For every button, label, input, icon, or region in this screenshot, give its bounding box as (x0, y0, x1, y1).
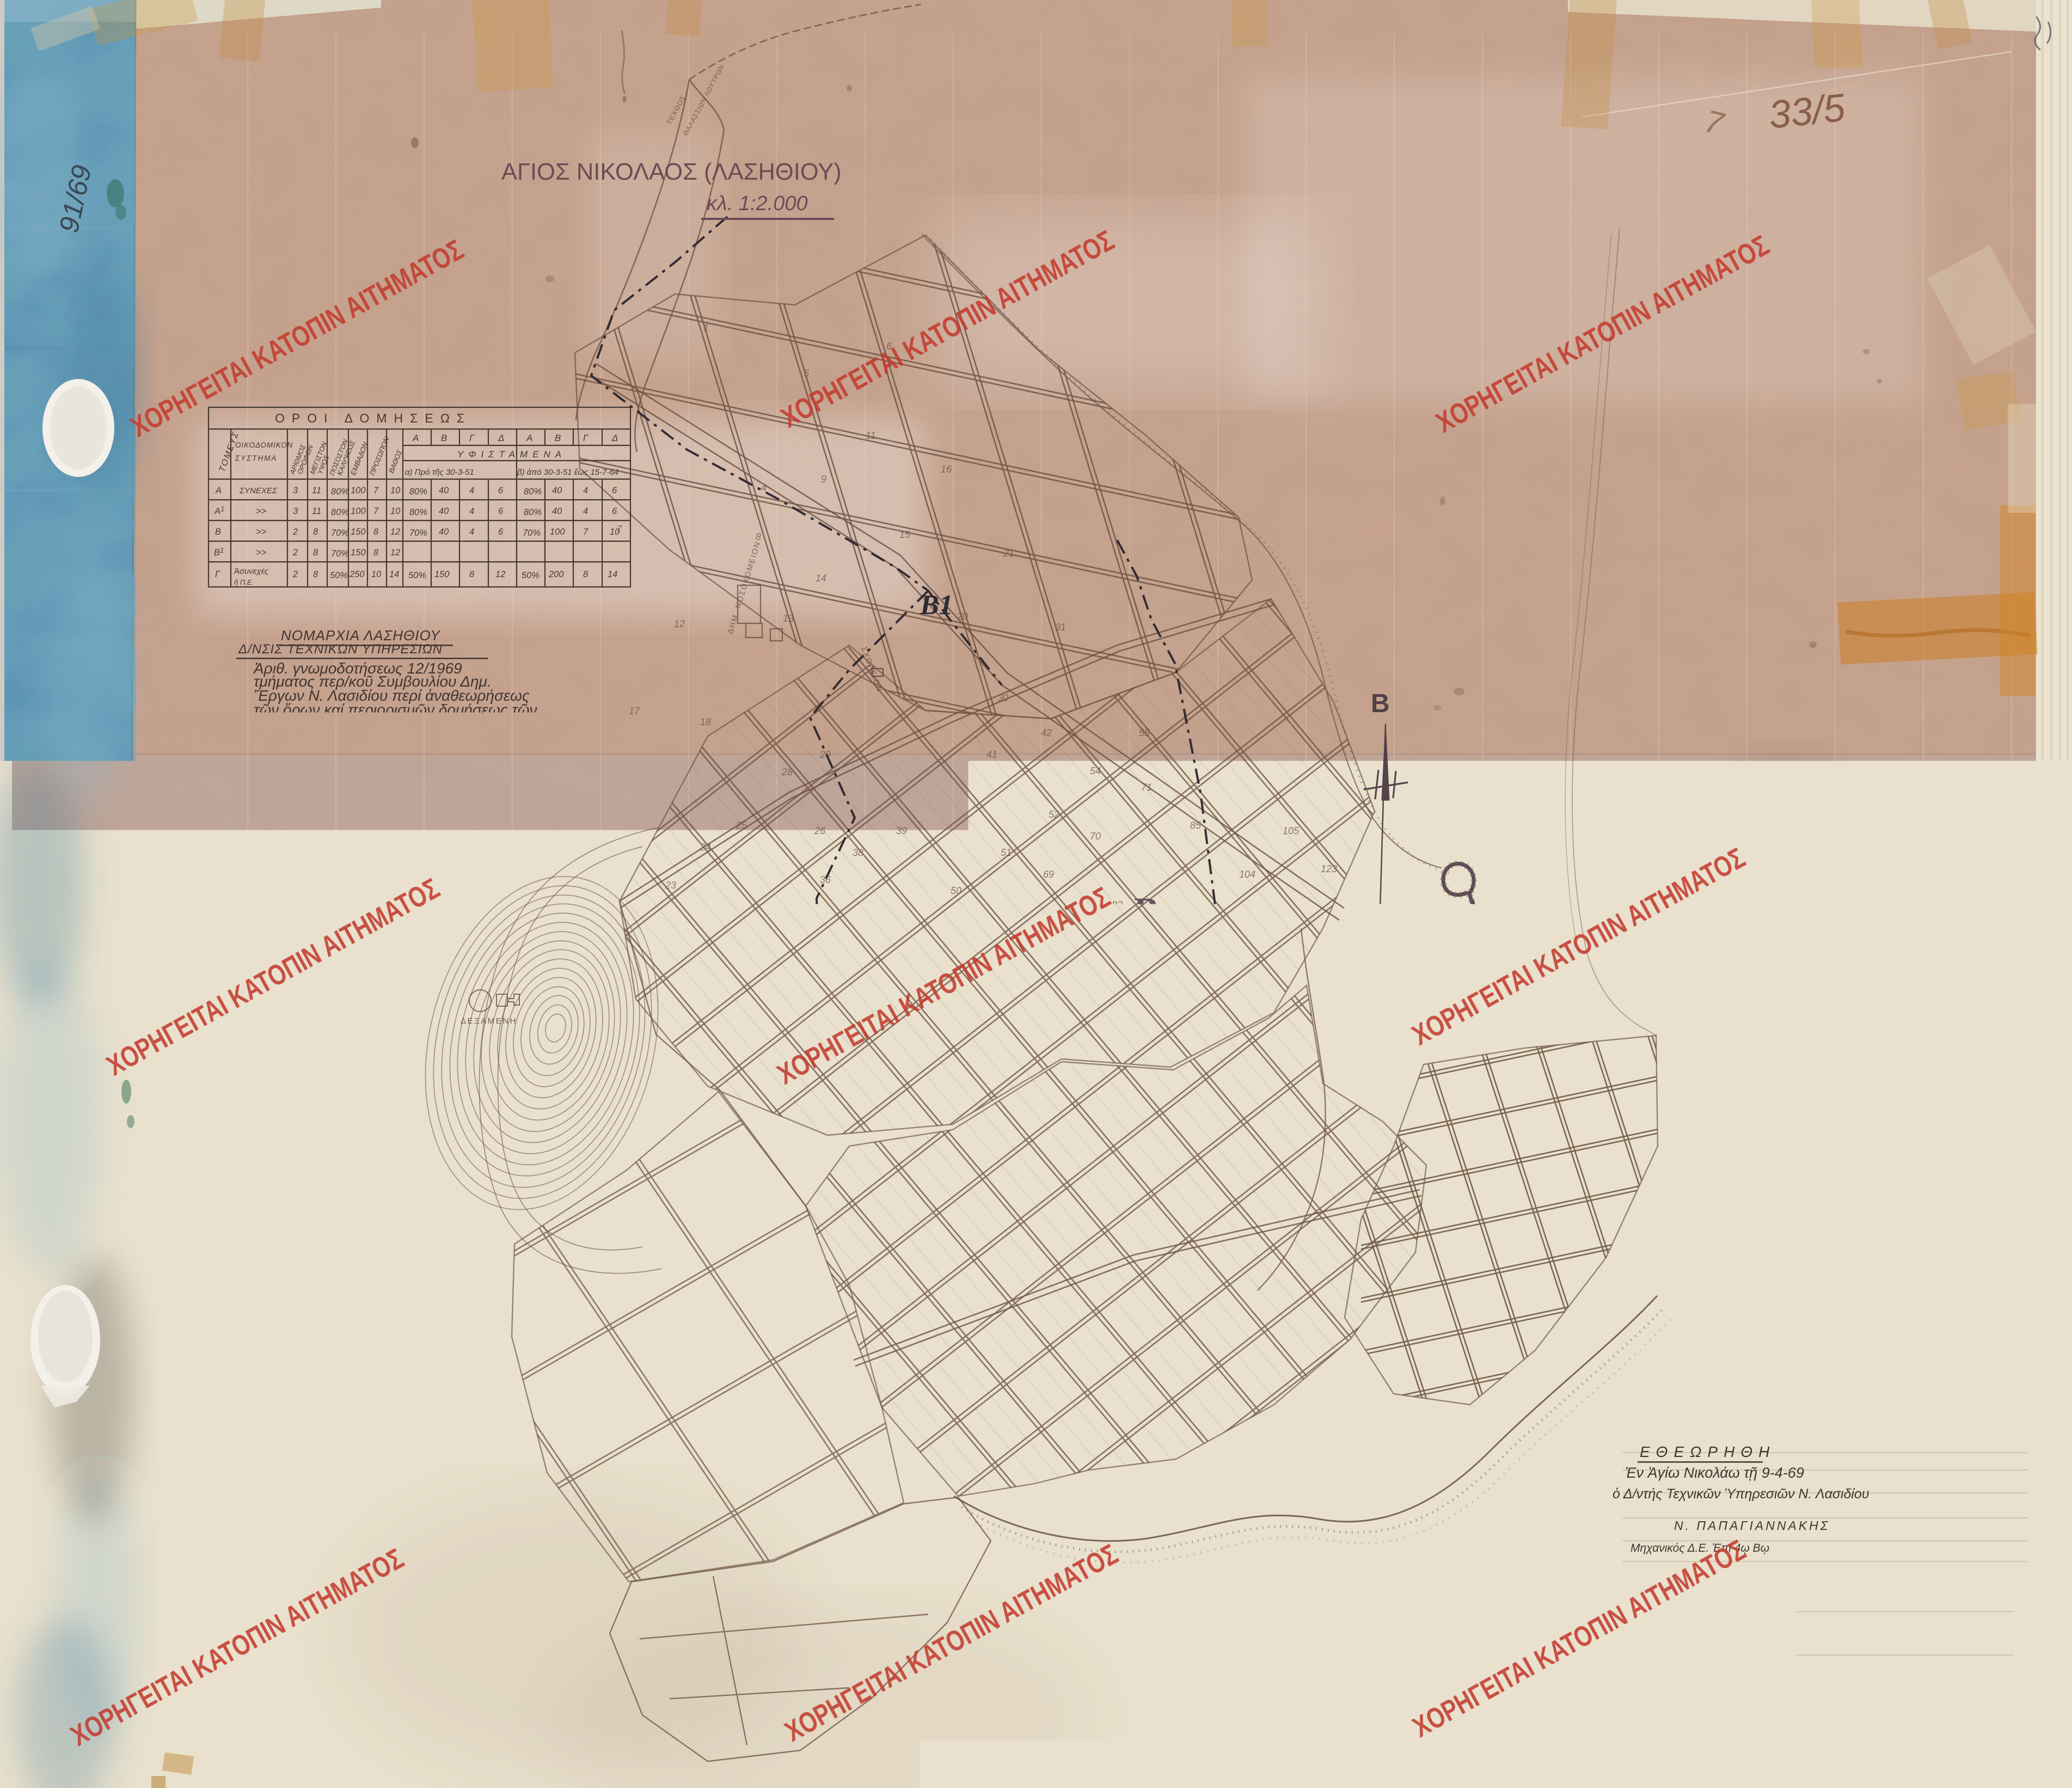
svg-text:81: 81 (1068, 938, 1079, 948)
svg-text:Α: Α (215, 486, 222, 495)
svg-text:55: 55 (1139, 727, 1150, 738)
svg-text:201: 201 (1603, 1315, 1620, 1326)
svg-text:156: 156 (1277, 1326, 1294, 1337)
svg-text:33/5: 33/5 (1767, 86, 1848, 137)
svg-text:10: 10 (610, 527, 620, 537)
svg-text:15: 15 (899, 529, 911, 540)
svg-text:ΛΙΜΝΗ: ΛΙΜΝΗ (1105, 1115, 1166, 1129)
svg-text:κλ. 1:2.000: κλ. 1:2.000 (707, 192, 808, 215)
svg-text:174: 174 (1424, 1217, 1440, 1228)
svg-text:136: 136 (1108, 1250, 1125, 1261)
svg-text:126: 126 (1332, 945, 1348, 956)
svg-text:77: 77 (891, 1087, 902, 1098)
svg-text:4: 4 (469, 527, 474, 537)
svg-text:Ν. ΠΑΠΑΓΙΑΝΝΑΚΗΣ: Ν. ΠΑΠΑΓΙΑΝΝΑΚΗΣ (1674, 1518, 1830, 1533)
svg-text:ΛΙΜΗΝ: ΛΙΜΗΝ (1322, 1084, 1376, 1096)
svg-text:165: 165 (1413, 1076, 1430, 1087)
svg-text:Β: Β (1371, 689, 1390, 718)
svg-text:80%: 80% (524, 507, 542, 517)
svg-text:115: 115 (1010, 1299, 1027, 1310)
svg-text:20: 20 (957, 611, 968, 622)
svg-text:11: 11 (866, 430, 876, 441)
svg-text:12: 12 (390, 527, 400, 537)
svg-text:101: 101 (1108, 983, 1125, 994)
svg-text:70%: 70% (409, 528, 427, 538)
svg-text:14: 14 (389, 570, 399, 579)
svg-text:118: 118 (1035, 1215, 1051, 1226)
svg-text:70%: 70% (331, 549, 349, 559)
svg-text:6: 6 (498, 486, 504, 495)
svg-text:38: 38 (853, 847, 863, 858)
svg-text:150: 150 (351, 527, 366, 537)
svg-text:69: 69 (1043, 869, 1054, 880)
svg-text:ἢ Π.Ε.: ἢ Π.Ε. (234, 578, 254, 586)
svg-text:99: 99 (1010, 1060, 1021, 1070)
svg-text:23: 23 (665, 880, 676, 891)
svg-text:4: 4 (761, 482, 767, 493)
svg-text:152: 152 (1163, 1517, 1179, 1528)
svg-text:8: 8 (373, 527, 379, 537)
svg-text:12: 12 (390, 548, 400, 558)
svg-text:Ἀσυνεχές: Ἀσυνεχές (234, 567, 269, 576)
svg-text:131: 131 (972, 1424, 989, 1435)
svg-text:85: 85 (1190, 820, 1201, 831)
svg-text:6: 6 (498, 506, 504, 516)
svg-text:6: 6 (498, 527, 504, 537)
svg-text:12: 12 (674, 619, 685, 629)
svg-text:Β: Β (1500, 1160, 1521, 1194)
svg-text:175: 175 (1484, 1103, 1501, 1114)
svg-text:β) ἀπό 30-3-51 ἕως 15-7-64: β) ἀπό 30-3-51 ἕως 15-7-64 (517, 468, 618, 477)
svg-text:61: 61 (836, 1217, 847, 1228)
svg-text:ΑΓΙΟΣ ΝΙΚΟΛΑΟΣ (ΛΑΣΗΘΙΟΥ): ΑΓΙΟΣ ΝΙΚΟΛΑΟΣ (ΛΑΣΗΘΙΟΥ) (501, 159, 842, 185)
svg-text:97: 97 (918, 1147, 929, 1158)
svg-text:8: 8 (313, 548, 318, 558)
svg-text:102: 102 (1152, 945, 1168, 956)
svg-text:166: 166 (1468, 1043, 1485, 1054)
svg-text:2: 2 (292, 527, 298, 537)
svg-text:Ἐν Ἁγίω Νικολάω τῇ 9-4-69: Ἐν Ἁγίω Νικολάω τῇ 9-4-69 (1625, 1465, 1804, 1481)
svg-text:35: 35 (804, 913, 815, 923)
svg-text:ΝΟΜΑΡΧΙΑ ΛΑΣΗΘΙΟΥ: ΝΟΜΑΡΧΙΑ ΛΑΣΗΘΙΟΥ (281, 627, 440, 644)
svg-text:Γ: Γ (469, 433, 475, 443)
svg-text:40: 40 (552, 506, 562, 516)
svg-text:129: 129 (874, 1511, 891, 1522)
svg-text:200: 200 (548, 570, 564, 579)
svg-text:32: 32 (686, 1043, 697, 1054)
svg-text:90: 90 (782, 1386, 793, 1397)
svg-text:135: 135 (1087, 1294, 1104, 1305)
svg-text:34: 34 (776, 962, 787, 972)
svg-text:154: 154 (1228, 1392, 1245, 1403)
svg-text:Γ: Γ (215, 570, 220, 579)
svg-text:75: 75 (749, 1315, 761, 1326)
svg-text:5: 5 (804, 368, 810, 379)
svg-text:ὁ Δ/ντής Τεχνικῶν Ὑπηρεσιῶν Ν.: ὁ Δ/ντής Τεχνικῶν Ὑπηρεσιῶν Ν. Λασιδίου (1613, 1486, 1869, 1502)
svg-text:117: 117 (1059, 1239, 1076, 1250)
svg-text:119: 119 (1057, 1188, 1073, 1199)
svg-text:Β: Β (441, 433, 447, 443)
svg-text:Δ/ΝΣΙΣ ΤΕΧΝΙΚΩΝ ΥΠΗΡΕΣΙΩΝ: Δ/ΝΣΙΣ ΤΕΧΝΙΚΩΝ ΥΠΗΡΕΣΙΩΝ (238, 642, 443, 657)
svg-text:89: 89 (755, 1435, 765, 1446)
svg-text:30: 30 (997, 693, 1008, 703)
svg-text:6: 6 (612, 506, 617, 516)
svg-text:96: 96 (880, 1201, 891, 1212)
svg-text:42: 42 (1041, 727, 1052, 738)
svg-text:148: 148 (1234, 1277, 1250, 1288)
svg-text:50%: 50% (408, 571, 426, 580)
svg-text:100: 100 (351, 486, 366, 495)
svg-text:60: 60 (771, 1250, 782, 1261)
svg-text:80: 80 (1021, 972, 1032, 983)
svg-text:10: 10 (390, 506, 401, 516)
svg-text:147: 147 (1206, 1305, 1223, 1315)
svg-text:33: 33 (733, 1000, 744, 1011)
svg-text:121: 121 (1245, 945, 1261, 956)
svg-text:120: 120 (1201, 983, 1217, 994)
svg-text:8: 8 (469, 570, 475, 579)
svg-text:134: 134 (1043, 1315, 1059, 1326)
svg-text:36: 36 (820, 874, 831, 885)
svg-text:Μουσείου τῆς πόλεως Ἁγίου Νικο: Μουσείου τῆς πόλεως Ἁγίου Νικολάου (254, 730, 511, 746)
svg-text:26: 26 (814, 825, 826, 836)
svg-text:162: 162 (1250, 1179, 1266, 1190)
svg-text:130: 130 (912, 1462, 929, 1473)
svg-text:1: 1 (703, 322, 709, 333)
svg-text:54: 54 (1090, 766, 1101, 776)
svg-text:7: 7 (373, 506, 379, 516)
svg-text:Α: Α (1302, 1226, 1327, 1264)
svg-text:ΕΝΕΚΡΙΘΗ: ΕΝΕΚΡΙΘΗ (255, 882, 364, 897)
svg-text:21: 21 (1003, 548, 1014, 559)
svg-text:11: 11 (312, 486, 321, 495)
svg-text:250: 250 (349, 570, 365, 579)
svg-text:100: 100 (1059, 1021, 1076, 1032)
svg-text:194: 194 (1511, 1288, 1528, 1299)
svg-text:79: 79 (978, 1011, 989, 1021)
svg-text:Γ: Γ (583, 433, 589, 443)
svg-text:4: 4 (469, 506, 474, 516)
svg-text:70: 70 (1090, 831, 1101, 842)
svg-text:ΣΥΣΤΗΜΑ: ΣΥΣΤΗΜΑ (235, 454, 277, 462)
svg-text:80%: 80% (331, 487, 349, 497)
svg-text:153: 153 (1212, 1473, 1228, 1484)
svg-text:Μηχανικός Δ.Ε. Ἐπί 4ῳ Βῳ: Μηχανικός Δ.Ε. Ἐπί 4ῳ Βῳ (1630, 1542, 1769, 1554)
svg-text:104: 104 (1239, 869, 1255, 880)
svg-text:41: 41 (986, 749, 997, 760)
svg-text:14: 14 (608, 570, 617, 579)
svg-text:>>: >> (256, 527, 267, 537)
svg-text:>>: >> (256, 548, 267, 558)
svg-text:49: 49 (905, 923, 916, 934)
svg-text:100: 100 (550, 527, 565, 537)
svg-text:40: 40 (439, 486, 449, 495)
svg-text:Α: Α (412, 433, 419, 443)
svg-text:Β: Β (555, 433, 561, 443)
svg-text:59: 59 (725, 1248, 736, 1259)
svg-text:128: 128 (836, 1544, 853, 1555)
svg-text:8: 8 (756, 531, 761, 542)
svg-text:145: 145 (1196, 1364, 1212, 1375)
svg-text:ΣΥΝΕΧΕΣ: ΣΥΝΕΧΕΣ (239, 486, 278, 495)
svg-text:8: 8 (313, 527, 318, 537)
svg-text:200: 200 (1576, 1364, 1593, 1375)
svg-text:40: 40 (552, 486, 562, 495)
svg-text:158: 158 (1315, 1343, 1332, 1354)
svg-text:11: 11 (312, 506, 321, 516)
svg-text:157: 157 (1310, 1288, 1327, 1299)
svg-text:25: 25 (735, 820, 747, 831)
svg-text:4: 4 (469, 486, 474, 495)
svg-text:40: 40 (439, 506, 449, 516)
svg-text:3: 3 (293, 506, 298, 516)
svg-text:50%: 50% (330, 571, 348, 580)
svg-text:105: 105 (1283, 825, 1299, 836)
svg-text:110: 110 (829, 1448, 844, 1459)
svg-text:150: 150 (351, 548, 366, 558)
svg-text:10: 10 (390, 486, 401, 495)
svg-text:62: 62 (755, 1154, 765, 1165)
svg-text:α) Πρό τῆς 30-3-51: α) Πρό τῆς 30-3-51 (405, 468, 474, 477)
svg-text:67: 67 (952, 945, 963, 956)
svg-text:182: 182 (1435, 1294, 1451, 1305)
svg-text:116: 116 (1027, 1261, 1043, 1272)
svg-text:150: 150 (1272, 1250, 1288, 1261)
svg-text:29: 29 (819, 749, 831, 760)
svg-text:12: 12 (495, 570, 505, 579)
svg-text:16: 16 (941, 464, 952, 475)
svg-text:63: 63 (788, 1098, 799, 1109)
svg-text:Α: Α (526, 433, 532, 443)
svg-text:100: 100 (351, 506, 366, 516)
svg-text:91: 91 (814, 1359, 825, 1370)
svg-text:80%: 80% (409, 507, 427, 517)
svg-text:Λασιδίου (Κρήτης): Λασιδίου (Κρήτης) (253, 747, 377, 764)
svg-text:78: 78 (934, 1049, 945, 1060)
svg-text:150: 150 (434, 570, 450, 579)
svg-text:173: 173 (1391, 1261, 1408, 1272)
svg-text:24: 24 (700, 842, 711, 853)
svg-text:70%: 70% (331, 528, 349, 538)
svg-text:3: 3 (293, 486, 298, 495)
svg-text:39: 39 (896, 825, 907, 836)
svg-text:70%: 70% (523, 528, 541, 538)
svg-text:40: 40 (439, 527, 449, 537)
svg-text:Β: Β (1342, 1478, 1364, 1514)
svg-text:160: 160 (1348, 1315, 1364, 1326)
svg-text:47: 47 (821, 1000, 832, 1011)
svg-text:88: 88 (700, 1495, 711, 1506)
svg-text:ΔΕΞΑΜΕΝΗ: ΔΕΞΑΜΕΝΗ (461, 1017, 517, 1026)
svg-text:50%: 50% (522, 571, 540, 580)
svg-text:114: 114 (978, 1321, 994, 1332)
svg-text:123: 123 (1321, 864, 1337, 874)
svg-text:2: 2 (292, 570, 298, 579)
svg-text:185: 185 (1522, 1147, 1539, 1158)
svg-text:8: 8 (583, 570, 589, 579)
svg-text:9: 9 (821, 474, 826, 485)
svg-text:7: 7 (583, 527, 589, 537)
svg-text:161: 161 (1310, 1386, 1326, 1397)
svg-text:>>: >> (256, 506, 267, 516)
svg-text:144: 144 (1168, 1430, 1185, 1441)
svg-text:122: 122 (1283, 907, 1299, 918)
svg-text:133: 133 (1076, 1386, 1092, 1397)
svg-text:163: 163 (1321, 1147, 1337, 1158)
svg-text:ΟΡΟΙ ΔΟΜΗΣΕΩΣ: ΟΡΟΙ ΔΟΜΗΣΕΩΣ (275, 411, 471, 425)
svg-text:31: 31 (1055, 622, 1066, 633)
svg-text:17: 17 (629, 706, 640, 717)
svg-text:73: 73 (602, 1343, 613, 1354)
svg-text:Β1: Β1 (919, 590, 953, 621)
svg-text:98: 98 (967, 1098, 978, 1109)
svg-text:80%: 80% (409, 487, 427, 497)
svg-text:184: 184 (1506, 1207, 1522, 1217)
svg-text:2: 2 (292, 548, 298, 558)
svg-text:6: 6 (612, 486, 617, 495)
svg-text:140: 140 (1136, 1310, 1152, 1321)
svg-text:87: 87 (660, 1452, 671, 1462)
svg-text:4: 4 (583, 506, 588, 516)
svg-text:48: 48 (861, 962, 872, 972)
svg-text:Β: Β (1134, 890, 1158, 931)
svg-text:13: 13 (783, 613, 794, 624)
svg-text:113: 113 (951, 1343, 966, 1354)
svg-text:109: 109 (776, 1511, 793, 1522)
svg-text:18: 18 (700, 717, 711, 727)
svg-text:ΥΦΙΣΤΑΜΕΝΑ: ΥΦΙΣΤΑΜΕΝΑ (457, 449, 566, 460)
svg-text:167: 167 (1577, 1060, 1593, 1070)
svg-text:80%: 80% (524, 487, 542, 497)
svg-text:183: 183 (1468, 1245, 1484, 1256)
svg-text:7: 7 (373, 486, 379, 495)
svg-text:10: 10 (371, 570, 382, 579)
svg-text:94: 94 (934, 1266, 945, 1277)
svg-text:71: 71 (1141, 782, 1152, 793)
svg-text:4: 4 (583, 486, 588, 495)
svg-text:143: 143 (1119, 1473, 1136, 1484)
svg-text:8: 8 (313, 570, 318, 579)
svg-text:52: 52 (1049, 809, 1059, 820)
svg-text:103: 103 (1196, 907, 1212, 918)
svg-text:80%: 80% (331, 507, 349, 517)
svg-text:92: 92 (863, 1305, 874, 1315)
svg-text:112: 112 (912, 1386, 928, 1397)
svg-text:51: 51 (1001, 847, 1012, 858)
svg-text:ΕΘΕΩΡΗΘΗ: ΕΘΕΩΡΗΘΗ (1640, 1443, 1775, 1460)
svg-text:14: 14 (816, 573, 826, 584)
svg-text:8: 8 (373, 548, 379, 558)
svg-text:74: 74 (678, 1354, 689, 1364)
svg-text:196: 196 (1577, 1234, 1593, 1245)
svg-text:28: 28 (781, 767, 793, 777)
svg-text:Δ: Δ (611, 433, 618, 443)
svg-text:50: 50 (951, 885, 961, 896)
svg-text:Β: Β (215, 527, 221, 537)
svg-text:Δ: Δ (498, 433, 504, 443)
svg-text:ΟΙΚΟΔΟΜΙΚΟΝ: ΟΙΚΟΔΟΜΙΚΟΝ (235, 441, 293, 449)
